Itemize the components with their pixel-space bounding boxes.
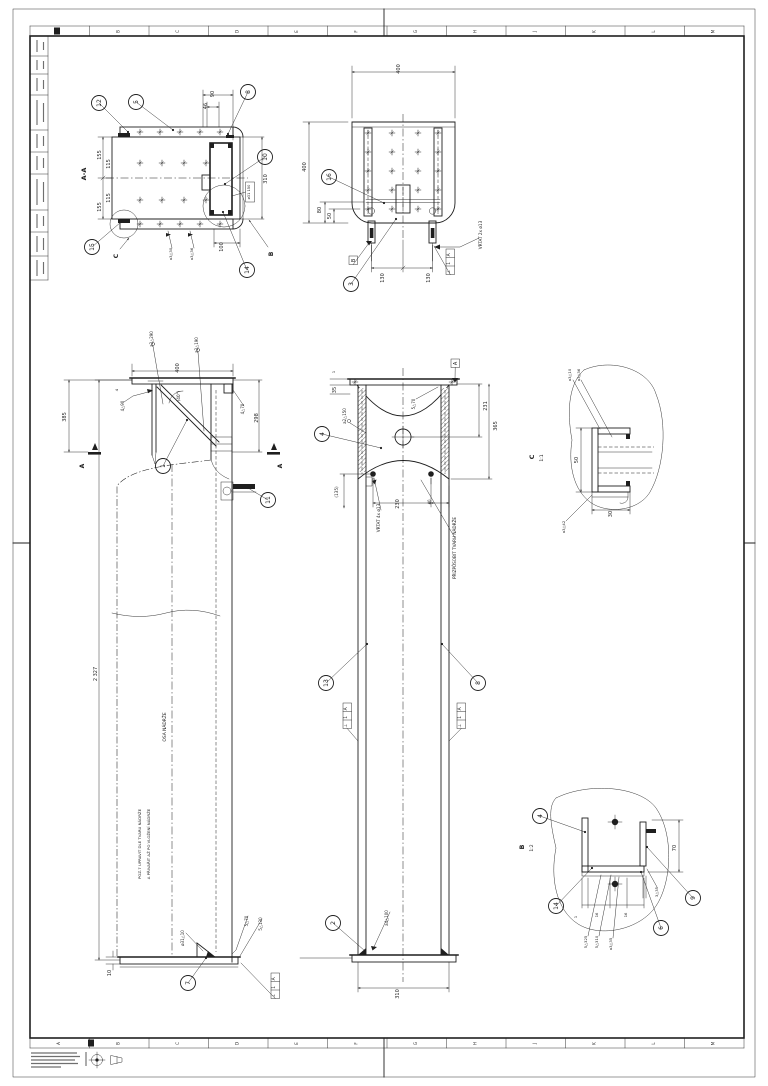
balloon-15-number: 15 <box>89 243 96 251</box>
balloon-7-number: 7 <box>185 981 192 985</box>
balloon-13-number: 13 <box>323 679 330 687</box>
zone-letter-bottom-J: J <box>532 1043 537 1045</box>
aa-dim-155-top: 155 <box>97 150 103 160</box>
balloon-12-number: 12 <box>96 99 103 107</box>
v2-dim-400-left: 400 <box>302 162 308 172</box>
aa-title: A-A <box>80 168 88 181</box>
v4-dim-365: 365 <box>493 421 499 431</box>
v3-dim-2327: 2 327 <box>93 667 99 681</box>
zone-letter-top-M: M <box>710 29 715 33</box>
v2-dim-80: 80 <box>317 207 323 213</box>
aa-dim-100: 100 <box>219 242 225 252</box>
balloon-10-number: 10 <box>262 153 269 161</box>
fcf-0-cell-2: ⊥ <box>446 270 452 274</box>
c-weld-a3-36: a3△36 <box>576 368 581 381</box>
v2-dim-50: 50 <box>327 213 333 219</box>
v4-dim-35: 35 <box>332 387 338 393</box>
v3-note-line1: POZ.7 UPRAVIT DLE TVARU NÁDRŽE <box>137 808 142 879</box>
v3-weld-5-130: 5△130 <box>258 917 263 931</box>
b-dim-16a: 16 <box>594 912 599 917</box>
v3-weld-o31-10: ø31△10 <box>180 930 185 946</box>
aa-dim-155-bot: 155 <box>97 202 103 212</box>
datum-A-label: A <box>453 361 459 365</box>
aa-view-arrow-b: B <box>268 251 275 256</box>
v4-weld-a4-100: a4△100 <box>384 910 389 926</box>
aa-dim-90: 90 <box>210 91 216 97</box>
zone-letter-top-D: D <box>234 30 239 33</box>
c-dim-30: 30 <box>608 511 614 517</box>
drawing-sheet: AABBCCDDEEFFGGHHJJKKLLMM A1⊥A1⊥A1⊥A1⊥ BA… <box>0 0 768 1086</box>
b-weld-3-35: 3△35 <box>654 886 659 897</box>
zone-letter-bottom-H: H <box>472 1042 477 1045</box>
v4-note-vrtat4: VRTAT 4x ø13 <box>376 503 381 532</box>
v4-dim-230: 230 <box>395 499 401 509</box>
v3-weld-a2-290: a2△290 <box>149 331 154 347</box>
aa-dim-115-top: 115 <box>106 159 112 169</box>
balloon-16-number: 16 <box>326 173 333 181</box>
v2-dim-130-r: 130 <box>426 273 432 283</box>
b-detail-title: B <box>518 844 526 849</box>
v3-dim-385: 385 <box>62 412 68 422</box>
zone-letter-top-J: J <box>532 31 537 33</box>
aa-weld-a3-30: a3△30 <box>168 247 173 260</box>
aa-dim-310: 310 <box>263 174 269 184</box>
zone-letter-bottom-A: A <box>56 1042 61 1045</box>
zone-letter-top-A: A <box>56 30 61 33</box>
v3-dim-40deg: (40°) <box>176 390 181 401</box>
c-detail-scale: 1:1 <box>539 454 545 461</box>
fcf-2-cell-2: ⊥ <box>343 724 349 728</box>
zone-letter-bottom-C: C <box>175 1042 180 1045</box>
balloon-4-number: 4 <box>319 432 326 436</box>
c-weld-a3-42: a3△42 <box>561 520 566 533</box>
v3-note-line2: A PŘIVAŘIT AŽ PO VLOŽENÍ NÁDRŽE <box>146 808 151 879</box>
b-dim-70: 70 <box>672 845 678 851</box>
fcf-3-cell-2: ⊥ <box>457 724 463 728</box>
v4-weld-a2-150: a2△150 <box>342 408 347 424</box>
balloon-14-number: 14 <box>244 266 251 274</box>
aa-dim-o31: ø31 150 <box>247 184 251 199</box>
aa-view-arrow-c: C <box>113 253 120 258</box>
v2-note-vrtat: VRTAT 2x ø13 <box>478 220 483 249</box>
v4-dim-135: (135) <box>334 486 339 498</box>
v4-dim-310: 310 <box>395 989 401 999</box>
datum-B-label: B <box>351 258 357 262</box>
v2-dim-130-l: 130 <box>380 273 386 283</box>
b-weld-5-325: 5△325 <box>583 935 588 948</box>
balloon-6-number: 6 <box>658 926 665 930</box>
v4-weld-5-70: 5△70 <box>411 398 416 409</box>
v3-dim-400: 400 <box>175 363 181 373</box>
aa-weld-a3-36: a3△36 <box>189 247 194 260</box>
b-weld-a3-35: a3△35 <box>608 937 613 950</box>
balloon-9-number: 9 <box>690 896 697 900</box>
balloon-2-number: 2 <box>330 921 337 925</box>
aa-dim-46: 46 <box>203 103 209 109</box>
b-detail-scale: 1:2 <box>529 844 535 851</box>
v3-weld-4-70: 4△70 <box>240 403 245 414</box>
balloon-1-number: 1 <box>160 464 167 468</box>
balloon-11-number: 11 <box>265 496 272 504</box>
v4-dim-40: 40 <box>427 499 432 505</box>
v4-note-prizpusobit: PŘIZPŮSOBIT TVARU NÁDRŽE <box>452 517 457 579</box>
drawing-canvas: AABBCCDDEEFFGGHHJJKKLLMM A1⊥A1⊥A1⊥A1⊥ BA… <box>0 0 768 1086</box>
fcf-3-cell-1: 1 <box>457 716 463 719</box>
v4-dim-231: 231 <box>483 401 489 411</box>
aa-dim-115-bot: 115 <box>106 193 112 203</box>
v3-dim-298: 298 <box>254 413 260 423</box>
fcf-1-cell-1: 1 <box>271 986 277 989</box>
zone-letter-top-H: H <box>472 30 477 33</box>
zone-letter-top-G: G <box>413 30 418 33</box>
zone-letter-top-B: B <box>115 30 120 33</box>
zone-letter-bottom-K: K <box>591 1042 596 1045</box>
v3-weld-4-90: 4△90 <box>120 400 125 411</box>
c-weld-a3-10: a3△10 <box>567 368 572 381</box>
c-detail-title: C <box>528 454 536 459</box>
v3-section-a-left: A <box>79 463 86 468</box>
fcf-2-cell-0: A <box>343 707 349 710</box>
zone-letter-bottom-D: D <box>234 1042 239 1045</box>
b-dim-16b: 16 <box>623 912 628 917</box>
v2-dim-400-top: 400 <box>396 64 402 74</box>
balloon-14-number: 14 <box>553 902 560 910</box>
b-weld-5-310: 5△310 <box>594 935 599 948</box>
zone-letter-top-K: K <box>591 30 596 33</box>
fcf-3-cell-0: A <box>457 707 463 710</box>
zone-letter-bottom-B: B <box>115 1042 120 1045</box>
v3-weld-a2-190: a2△190 <box>194 337 199 353</box>
c-dim-50: 50 <box>574 457 580 463</box>
fcf-1-cell-2: ⊥ <box>271 994 277 998</box>
fcf-0-cell-0: A <box>446 253 452 256</box>
fcf-0-cell-1: 1 <box>446 262 452 265</box>
v3-section-a-right: A <box>277 463 284 468</box>
zone-letter-bottom-G: G <box>413 1042 418 1045</box>
zone-letter-bottom-M: M <box>710 1041 715 1045</box>
v3-weld-5-70: 5△70 <box>244 915 249 926</box>
fcf-2-cell-1: 1 <box>343 716 349 719</box>
balloon-8-number: 8 <box>245 90 252 94</box>
fcf-1-cell-0: A <box>271 977 277 980</box>
balloon-3-number: 3 <box>348 282 355 286</box>
balloon-5-number: 5 <box>133 100 140 104</box>
balloon-8-number: 8 <box>475 681 482 685</box>
v3-dim-10: 10 <box>107 970 113 976</box>
balloon-4-number: 4 <box>537 814 544 818</box>
zone-letter-top-C: C <box>175 30 180 33</box>
